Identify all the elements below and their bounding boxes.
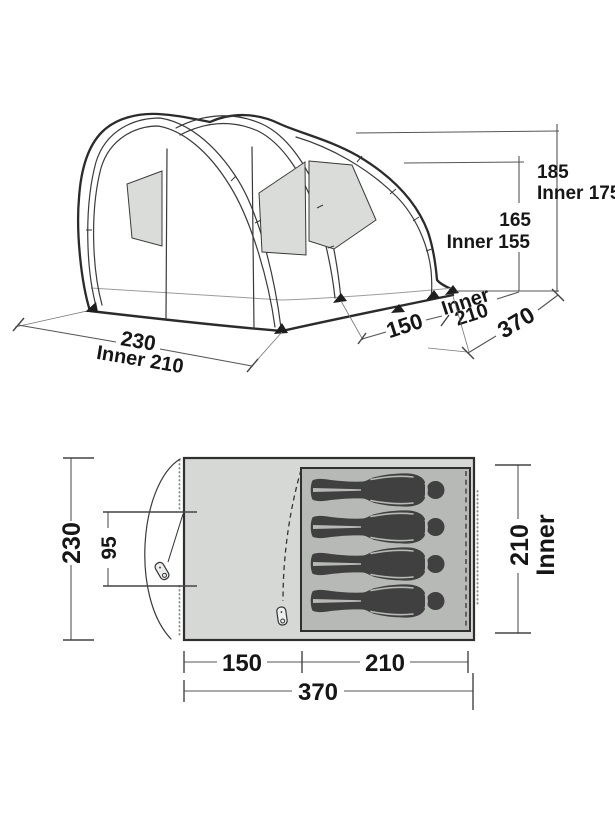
length-dimensions-plan: 150 210 370 (184, 650, 473, 710)
front-arch-inner (94, 126, 275, 327)
front-ground-edge (90, 311, 282, 331)
overall-width-dimension: 230 (58, 458, 94, 640)
tunnel-height-label: 165 (499, 210, 531, 231)
zipper-pull-porch (276, 606, 287, 625)
inner-length-plan-label: 210 (365, 650, 405, 677)
total-length-label: 370 (493, 301, 539, 343)
overall-width-label: 230 (58, 522, 86, 564)
porch-length-plan-label: 150 (222, 650, 262, 677)
front-left-window (127, 171, 162, 246)
side-rear-window (309, 161, 376, 249)
height-dimensions: 185 Inner 175 165 Inner 155 (356, 124, 615, 292)
inner-width-word-label: Inner (532, 514, 560, 575)
tent-drawing (78, 114, 459, 334)
door-flap-curve (145, 459, 180, 639)
side-front-window (259, 162, 306, 255)
side-ground-edge (282, 295, 453, 331)
floor-plan-view: 230 95 210 Inner 150 210 (58, 458, 560, 710)
zipper-pull-door (154, 561, 171, 581)
tunnel-height-inner-label: Inner 155 (447, 232, 531, 253)
inner-width-dimension: 210 Inner (495, 465, 560, 633)
door-opening-label: 95 (98, 536, 121, 560)
total-length-plan-label: 370 (298, 679, 338, 706)
door-zip-line (168, 514, 183, 562)
porch-length-label: 150 (383, 308, 426, 343)
tent-dimension-diagram: 185 Inner 175 165 Inner 155 230 Inner 21… (0, 0, 615, 820)
peak-height-label: 185 (537, 162, 569, 183)
length-dimensions: 150 Inner 210 370 (341, 284, 564, 359)
peak-height-inner-label: Inner 175 (537, 183, 615, 204)
front-width-dimension: 230 Inner 210 (13, 311, 282, 378)
inner-width-value-label: 210 (506, 524, 534, 566)
perspective-view: 185 Inner 175 165 Inner 155 230 Inner 21… (13, 114, 615, 378)
diagram-svg: 185 Inner 175 165 Inner 155 230 Inner 21… (0, 0, 615, 820)
